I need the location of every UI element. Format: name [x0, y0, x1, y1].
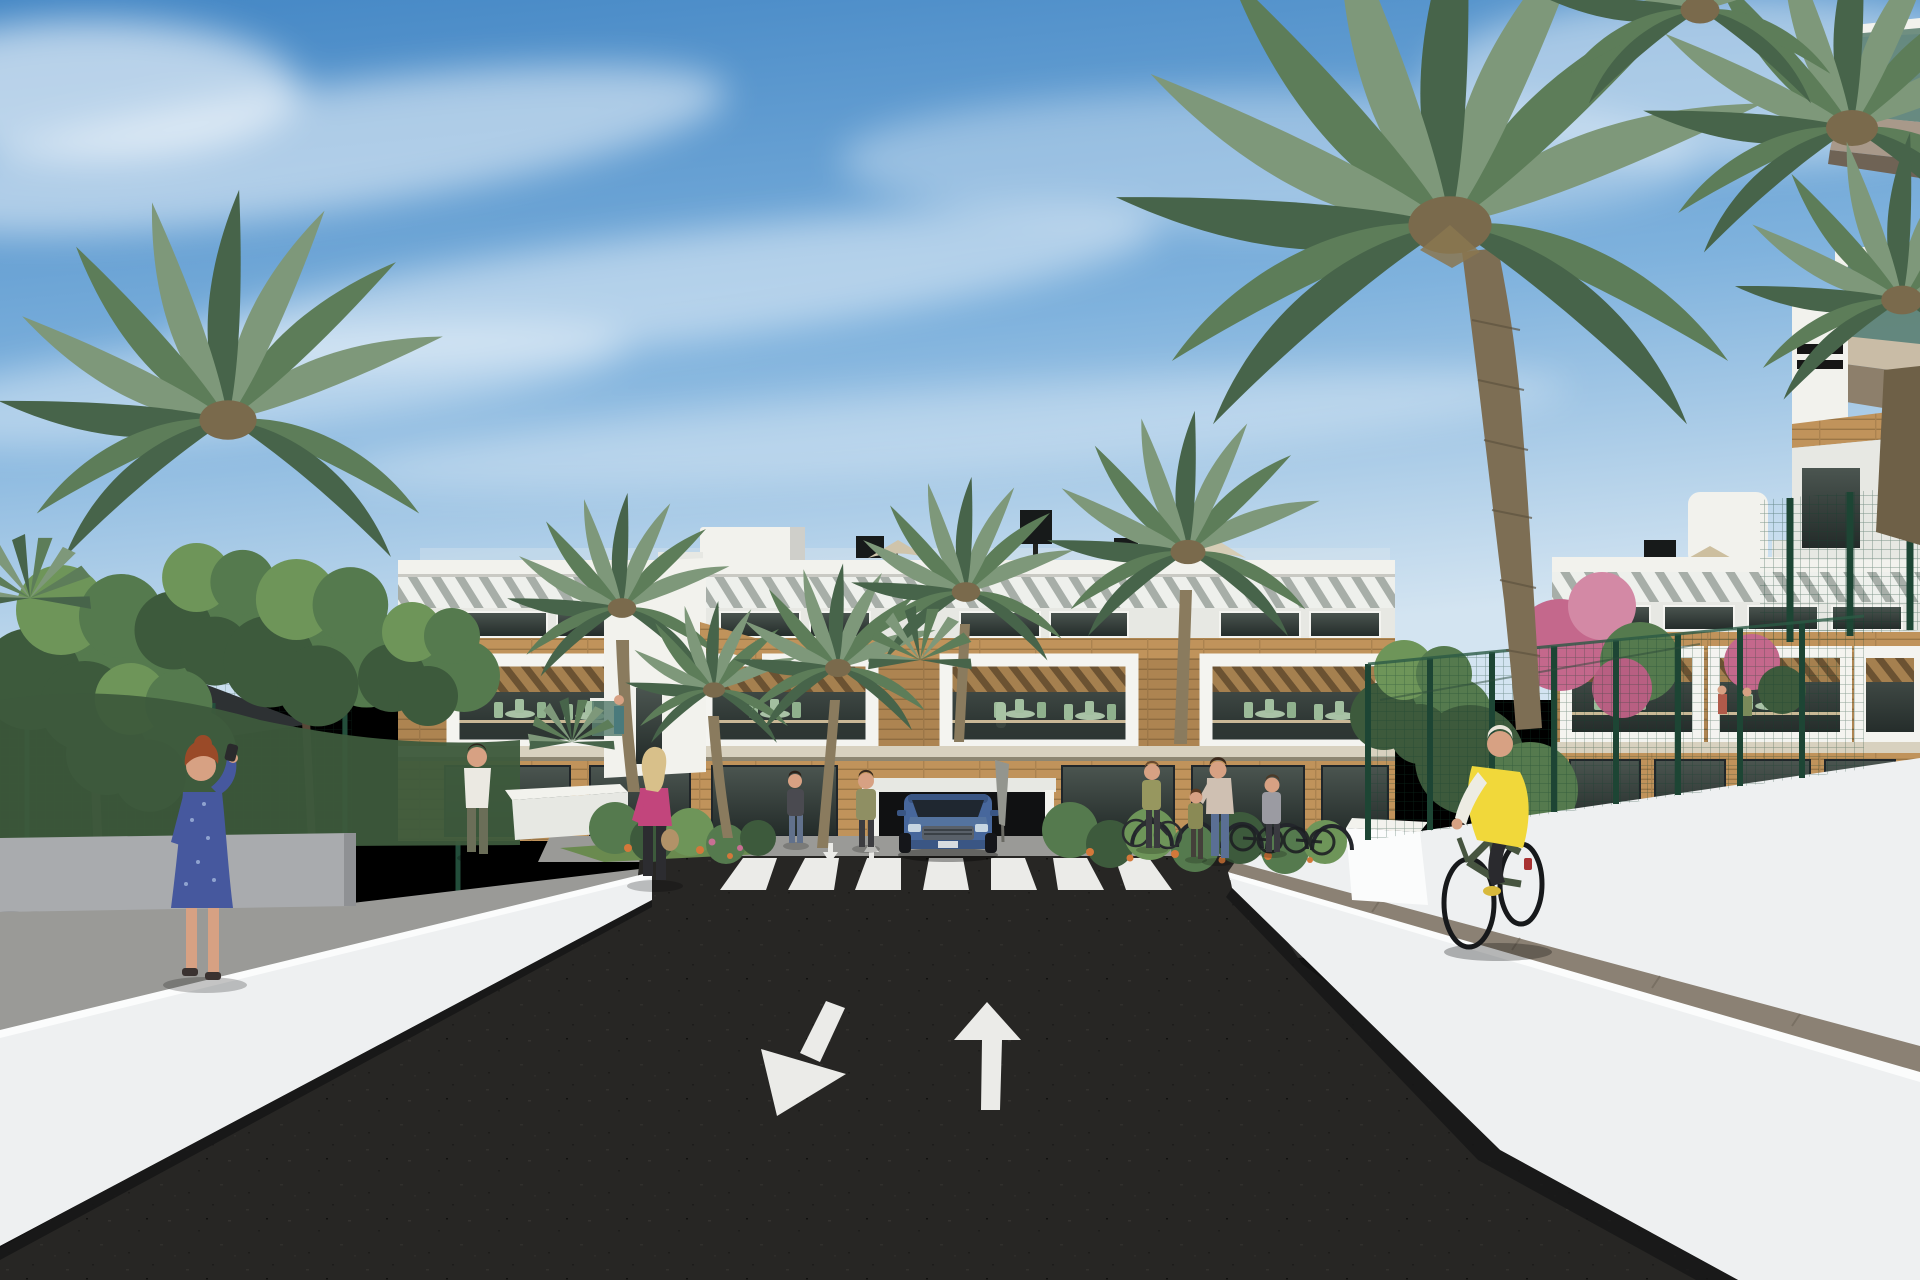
car-headlight-right	[975, 824, 988, 832]
grey-top	[1262, 792, 1281, 824]
leg	[186, 900, 197, 970]
car-windshield	[912, 800, 984, 817]
cyclist-shoe	[1483, 886, 1501, 896]
shoe	[205, 972, 221, 980]
white-tshirt	[464, 768, 491, 808]
trousers	[656, 822, 666, 880]
head	[1487, 731, 1513, 757]
garage-lintel	[862, 778, 1056, 792]
shadow	[163, 977, 247, 993]
terrace-slab	[398, 746, 1395, 758]
olive-jacket	[856, 789, 876, 820]
head	[467, 747, 487, 767]
trousers	[643, 822, 653, 876]
hair-bun	[194, 735, 212, 753]
car-shadow	[898, 848, 998, 862]
left-back-wall-corner	[344, 833, 356, 906]
child-top	[1188, 803, 1203, 829]
jeans	[1221, 812, 1229, 858]
architectural-render-scene	[0, 0, 1920, 1280]
car-wheel	[985, 833, 997, 853]
shoe	[182, 968, 198, 976]
slab-underside	[398, 757, 1395, 761]
hand	[1452, 819, 1463, 830]
blue-suv	[897, 794, 999, 862]
bike-reflector	[1524, 858, 1532, 870]
dark-top	[787, 789, 804, 816]
trousers	[467, 806, 476, 852]
leg	[208, 900, 219, 974]
balcony-person	[614, 695, 624, 734]
car-headlight-left	[908, 824, 921, 832]
floral-top	[1206, 778, 1234, 814]
olive-top	[1142, 780, 1161, 810]
render-viewport	[0, 0, 1920, 1280]
handbag	[661, 829, 679, 851]
car-mirror	[990, 810, 999, 816]
roof-ac-right	[1644, 540, 1676, 558]
terrace-module	[946, 660, 1132, 746]
car-wheel	[899, 833, 911, 853]
trousers	[479, 806, 488, 854]
car-license-plate	[938, 841, 958, 848]
jeans	[1211, 812, 1219, 856]
car-mirror	[897, 810, 906, 816]
